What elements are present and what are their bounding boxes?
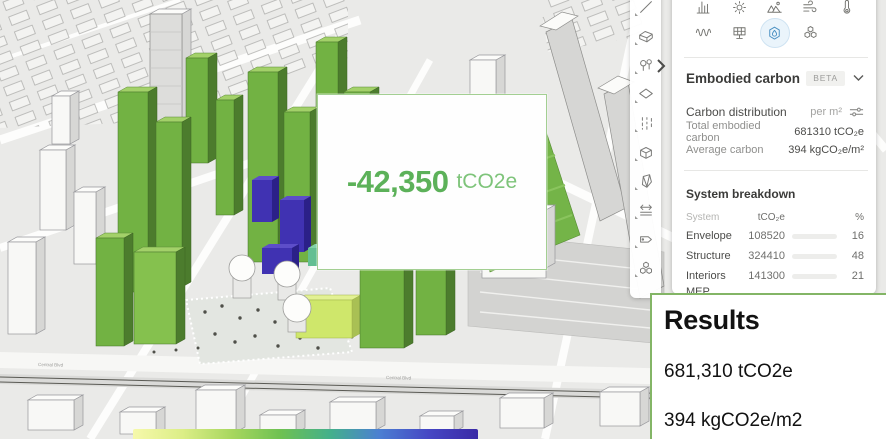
temperature-module-icon[interactable] <box>831 0 861 16</box>
callout-value: -42,350 <box>347 164 449 200</box>
materials-tool-icon[interactable] <box>637 259 655 277</box>
table-row: Envelope 108520 16 <box>686 226 864 246</box>
row-value: 108520 <box>745 230 785 242</box>
prism-tool-icon[interactable] <box>637 172 655 190</box>
statistics-module-icon[interactable] <box>689 0 719 16</box>
carbon-legend-gradient <box>133 429 478 439</box>
noise-module-icon[interactable] <box>689 23 719 41</box>
surface-tool-icon[interactable] <box>637 85 655 103</box>
row-bar <box>792 234 837 239</box>
col-system: System <box>686 212 738 223</box>
road-label-2: Central Blvd <box>386 375 412 381</box>
distribution-settings-icon[interactable] <box>849 106 864 118</box>
results-average: 394 kgCO2e/m2 <box>664 410 881 432</box>
results-title: Results <box>664 305 881 336</box>
row-bar <box>792 274 837 279</box>
toolbar-expand-chevron[interactable] <box>656 58 666 74</box>
average-carbon-value: 394 kgCO₂e/m² <box>788 144 864 156</box>
app-window: Central Blvd Central Blvd <box>0 0 886 439</box>
panel-title: Embodied carbon <box>686 71 806 86</box>
wind-module-icon[interactable] <box>796 0 826 16</box>
table-row: Interiors 141300 21 <box>686 266 864 286</box>
per-m2-unit: per m² <box>810 106 842 118</box>
module-spacer <box>831 23 861 41</box>
total-carbon-label: Total embodied carbon <box>686 120 794 144</box>
system-breakdown-title: System breakdown <box>686 187 864 201</box>
road-tool-icon[interactable] <box>637 114 655 132</box>
materials-module-icon[interactable] <box>796 23 826 41</box>
analysis-panel: Embodied carbon BETA Carbon distribution… <box>672 0 876 294</box>
solar-module-icon[interactable] <box>724 23 754 41</box>
label-tool-icon[interactable] <box>637 230 655 248</box>
row-pct: 16 <box>844 230 864 242</box>
panel-divider-2 <box>684 170 868 171</box>
collapse-chevron-icon[interactable] <box>853 74 864 82</box>
row-system: Structure <box>686 250 738 263</box>
vegetation-tool-icon[interactable] <box>637 56 655 74</box>
beta-badge: BETA <box>806 71 845 86</box>
results-box: Results 681,310 tCO2e 394 kgCO2e/m2 <box>650 293 886 439</box>
row-system: Envelope <box>686 230 738 243</box>
sun-module-icon[interactable] <box>724 0 754 16</box>
measure-tool-icon[interactable] <box>637 201 655 219</box>
carbon-distribution-label: Carbon distribution <box>686 105 810 119</box>
row-bar <box>792 254 837 259</box>
row-pct: 48 <box>844 250 864 262</box>
results-total: 681,310 tCO2e <box>664 361 881 383</box>
road-label-1: Central Blvd <box>38 362 64 368</box>
line-tool-icon[interactable] <box>637 0 655 16</box>
panel-divider-1 <box>684 57 868 58</box>
row-pct: 21 <box>844 270 864 282</box>
module-tabs <box>686 0 864 43</box>
row-value: 324410 <box>745 250 785 262</box>
col-pct: % <box>844 212 864 223</box>
table-row: Structure 324410 48 <box>686 246 864 266</box>
terrain-module-icon[interactable] <box>760 0 790 16</box>
volume-tool-icon[interactable] <box>637 27 655 45</box>
total-carbon-value: 681310 tCO₂e <box>794 126 864 138</box>
carbon-savings-callout: -42,350 tCO2e <box>317 94 547 270</box>
embodied-carbon-module-icon[interactable] <box>760 18 790 48</box>
average-carbon-label: Average carbon <box>686 144 788 156</box>
col-tco2e: tCO₂e <box>745 212 785 223</box>
drawing-toolbar <box>630 0 661 298</box>
row-value: 141300 <box>745 270 785 282</box>
callout-unit: tCO2e <box>456 170 517 194</box>
row-system: Interiors <box>686 270 738 283</box>
box-tool-icon[interactable] <box>637 143 655 161</box>
